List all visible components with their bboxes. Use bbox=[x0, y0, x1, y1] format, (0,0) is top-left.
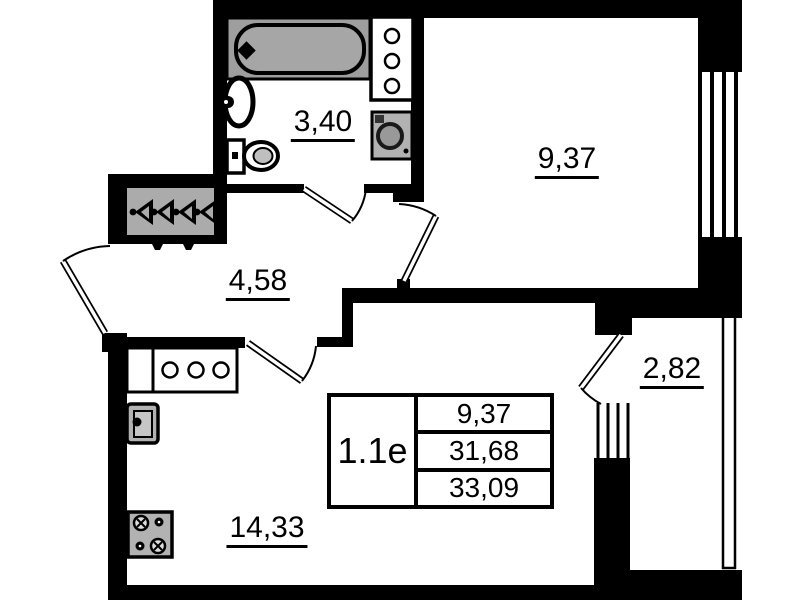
wardrobe bbox=[108, 174, 227, 250]
room-label-bathroom: 3,40 bbox=[291, 105, 355, 142]
wash-basin bbox=[222, 78, 253, 126]
floor-plan-canvas bbox=[0, 0, 799, 600]
bedroom-door bbox=[399, 204, 436, 281]
unit-living-area-value: 9,37 bbox=[418, 397, 550, 434]
floor-plan: 3,40 9,37 4,58 2,82 14,33 1.1е 9,37 31,6… bbox=[0, 0, 799, 600]
toilet bbox=[227, 140, 278, 173]
balcony-window bbox=[598, 403, 628, 458]
unit-info-table: 1.1е 9,37 31,68 33,09 bbox=[327, 393, 554, 509]
unit-area-rows: 9,37 31,68 33,09 bbox=[418, 397, 550, 505]
room-label-balcony: 2,82 bbox=[640, 352, 704, 389]
walls bbox=[102, 0, 742, 600]
stove bbox=[128, 512, 172, 557]
room-label-hallway: 4,58 bbox=[226, 264, 290, 301]
room-label-kitchen-living: 14,33 bbox=[226, 511, 307, 548]
bedroom-window bbox=[700, 72, 736, 238]
washing-machine bbox=[372, 112, 412, 159]
bathroom-door bbox=[304, 189, 366, 221]
entrance-door bbox=[63, 246, 110, 333]
kitchen-counter bbox=[127, 348, 237, 392]
bathtub bbox=[227, 18, 370, 79]
living-room-door bbox=[248, 343, 316, 381]
unit-total-area-value: 33,09 bbox=[418, 472, 550, 505]
kitchen-sink bbox=[127, 404, 158, 443]
room-label-bedroom: 9,37 bbox=[535, 142, 599, 179]
vent-shaft bbox=[371, 17, 413, 100]
balcony-door bbox=[581, 335, 621, 404]
balcony-glazing bbox=[722, 318, 736, 569]
unit-type-label: 1.1е bbox=[331, 397, 418, 505]
unit-area-value: 31,68 bbox=[418, 434, 550, 471]
